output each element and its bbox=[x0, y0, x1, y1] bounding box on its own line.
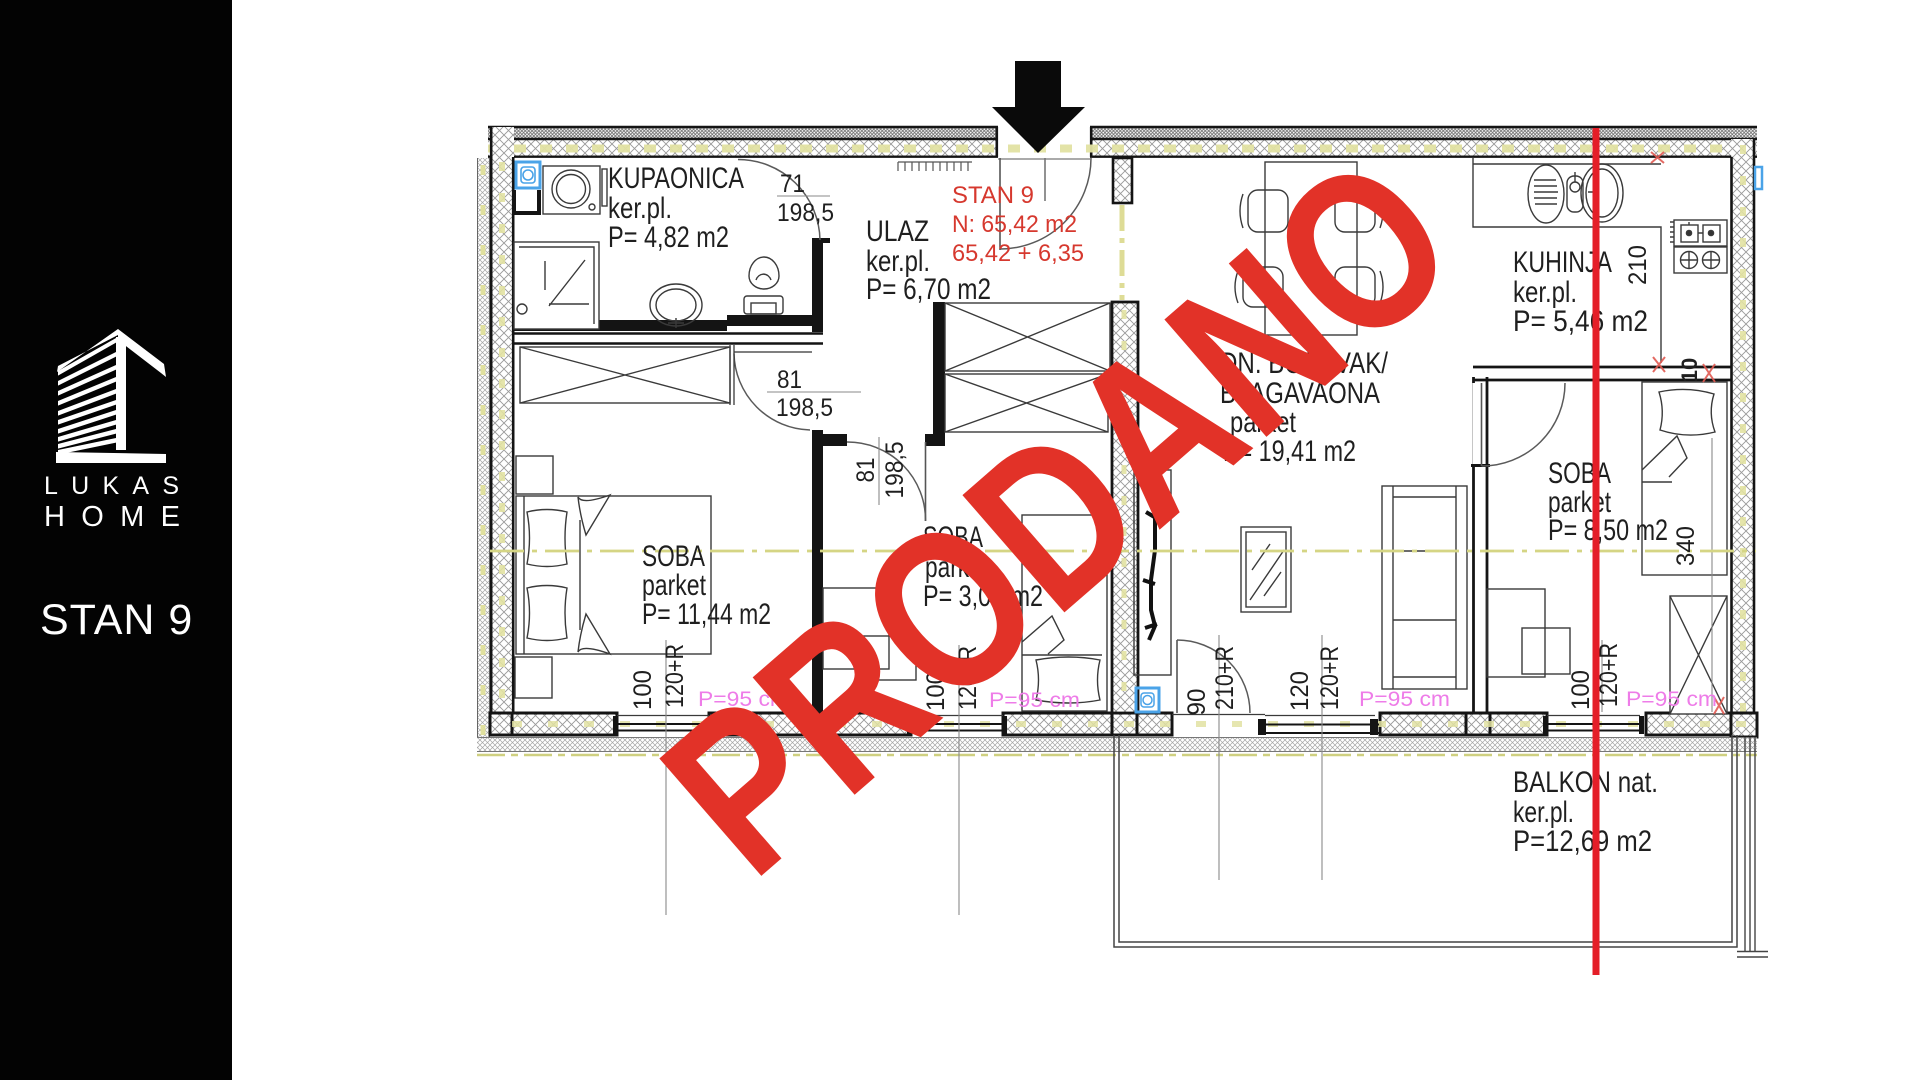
svg-text:120: 120 bbox=[1286, 671, 1314, 711]
svg-text:198,5: 198,5 bbox=[777, 199, 834, 227]
svg-text:90: 90 bbox=[1183, 689, 1211, 716]
svg-text:120+R: 120+R bbox=[1316, 646, 1344, 710]
svg-text:N: 65,42 m2: N: 65,42 m2 bbox=[952, 211, 1077, 238]
svg-text:65,42 + 6,35: 65,42 + 6,35 bbox=[952, 240, 1084, 267]
svg-text:KUPAONICA: KUPAONICA bbox=[608, 162, 744, 195]
svg-text:81: 81 bbox=[777, 366, 802, 394]
svg-text:P=12,69 m2: P=12,69 m2 bbox=[1513, 825, 1652, 858]
svg-text:STAN 9: STAN 9 bbox=[40, 596, 193, 644]
svg-text:210+R: 210+R bbox=[1211, 646, 1239, 710]
svg-text:P= 4,82 m2: P= 4,82 m2 bbox=[608, 221, 729, 254]
svg-text:100: 100 bbox=[1567, 670, 1595, 710]
svg-text:P= 6,70 m2: P= 6,70 m2 bbox=[866, 273, 991, 306]
svg-text:P=95 cm: P=95 cm bbox=[1359, 688, 1450, 711]
svg-text:ULAZ: ULAZ bbox=[866, 215, 929, 248]
svg-text:198,5: 198,5 bbox=[776, 394, 833, 422]
svg-text:71: 71 bbox=[780, 170, 805, 198]
svg-text:BALKON nat.: BALKON nat. bbox=[1513, 766, 1658, 799]
svg-text:STAN 9: STAN 9 bbox=[952, 182, 1034, 209]
svg-text:P= 8,50 m2: P= 8,50 m2 bbox=[1548, 514, 1668, 547]
svg-text:P=95 cm: P=95 cm bbox=[1626, 688, 1717, 711]
svg-text:210: 210 bbox=[1624, 245, 1652, 285]
svg-text:P= 5,46 m2: P= 5,46 m2 bbox=[1513, 305, 1648, 338]
svg-text:340: 340 bbox=[1672, 526, 1700, 566]
svg-text:10: 10 bbox=[1677, 358, 1702, 382]
svg-text:81: 81 bbox=[852, 458, 880, 483]
